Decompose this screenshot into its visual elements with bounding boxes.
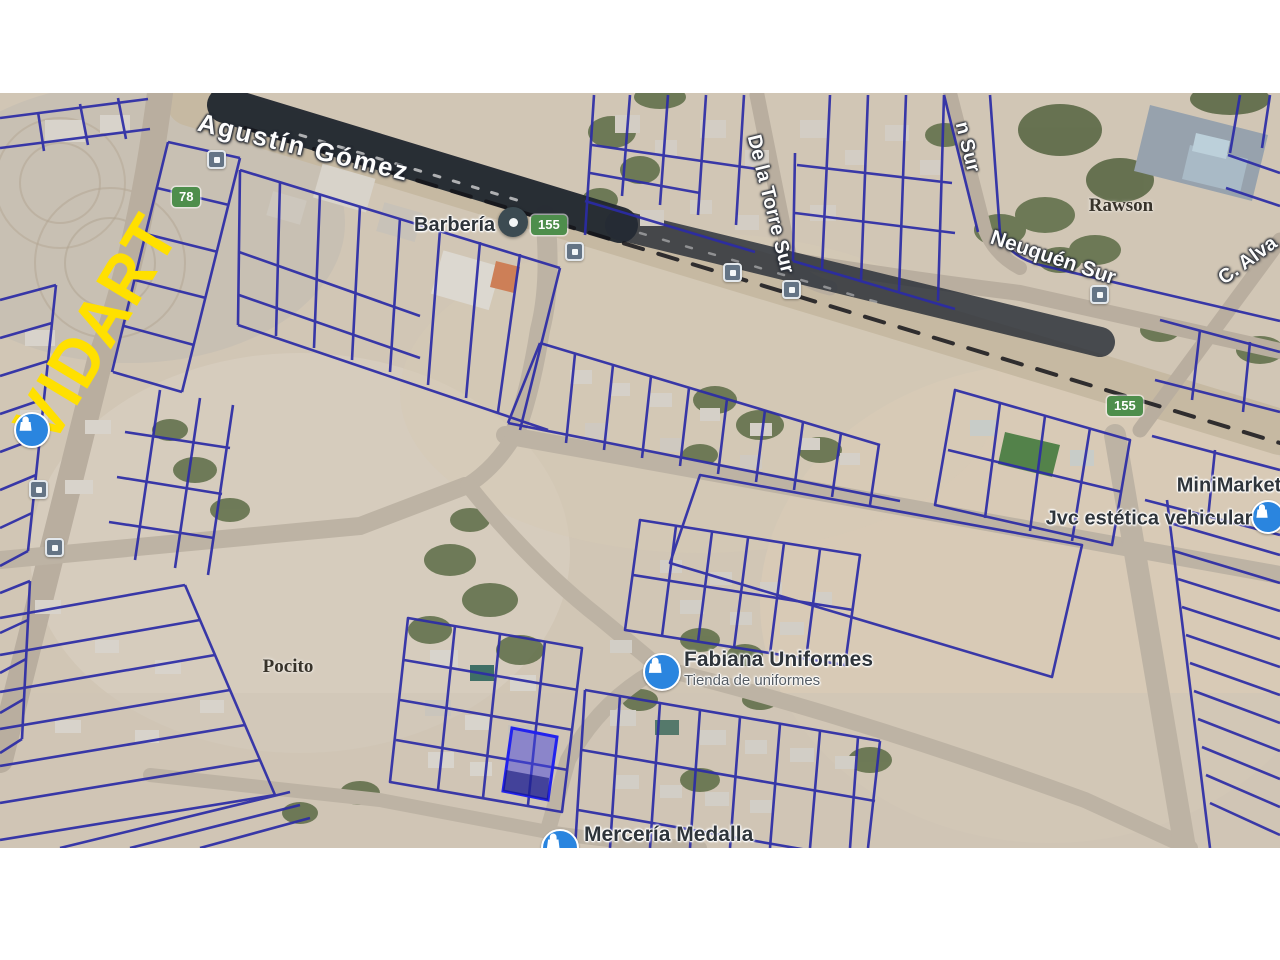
right-edge-shop-icon[interactable] [1251, 500, 1280, 534]
bus-stop-icon[interactable] [782, 280, 801, 299]
poi-label-merceria[interactable]: Mercería Medalla [584, 823, 753, 847]
locality-label-rawson: Rawson [1089, 195, 1153, 217]
poi-sublabel-fabiana: Tienda de uniformes [684, 672, 820, 689]
poi-label-minimarket[interactable]: MiniMarket [1177, 475, 1280, 498]
bus-stop-icon[interactable] [207, 150, 226, 169]
bus-stop-icon[interactable] [45, 538, 64, 557]
poi-label-barberia[interactable]: Barbería [414, 214, 495, 237]
locality-label-pocito: Pocito [263, 656, 314, 678]
screenshot-stage: Agustín Gómez De la Torre Sur n Sur Neuq… [0, 0, 1280, 960]
letterbox-top [0, 0, 1280, 93]
highlighted-parcel[interactable] [503, 728, 557, 800]
route-shield-155-west: 155 [531, 215, 567, 235]
letterbox-bottom [0, 848, 1280, 960]
poi-label-fabiana[interactable]: Fabiana Uniformes [684, 648, 873, 672]
bus-stop-icon[interactable] [1090, 285, 1109, 304]
route-shield-155-east: 155 [1107, 396, 1143, 416]
shopping-bag-icon [543, 831, 563, 848]
barberia-pin-icon[interactable] [498, 207, 528, 237]
shopping-bag-icon [16, 414, 35, 433]
shopping-bag-icon [1253, 502, 1271, 520]
poi-label-jvc[interactable]: Jvc estética vehicular [1046, 508, 1253, 531]
shopping-bag-icon [645, 655, 665, 675]
satellite-map-canvas[interactable]: Agustín Gómez De la Torre Sur n Sur Neuq… [0, 93, 1280, 848]
bus-stop-icon[interactable] [29, 480, 48, 499]
fabiana-shop-icon[interactable] [643, 653, 681, 691]
bus-stop-icon[interactable] [565, 242, 584, 261]
route-shield-78: 78 [172, 187, 200, 207]
bus-stop-icon[interactable] [723, 263, 742, 282]
left-shop-icon[interactable] [14, 412, 50, 448]
